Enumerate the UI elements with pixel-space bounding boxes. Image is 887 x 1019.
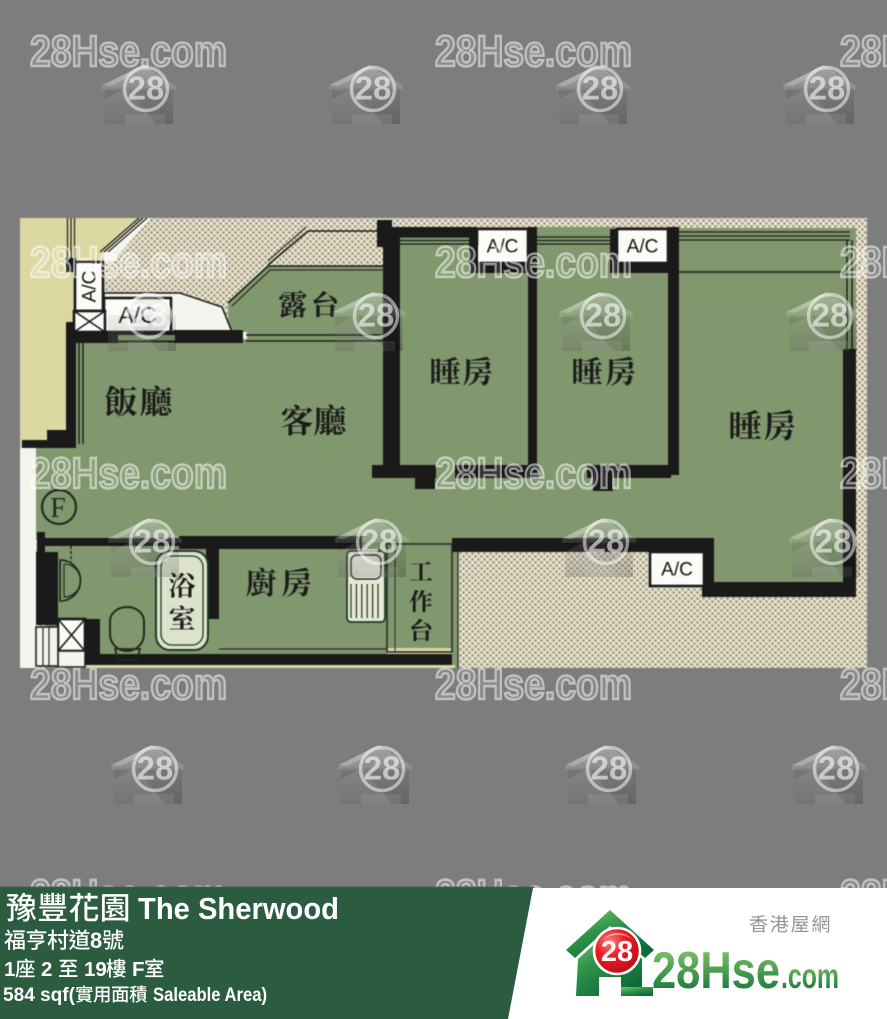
svg-text:28Hse.com: 28Hse.com	[435, 449, 632, 498]
svg-text:28Hse.com: 28Hse.com	[30, 449, 227, 498]
svg-text:28Hse.com: 28Hse.com	[30, 660, 227, 709]
svg-text:28Hse.com: 28Hse.com	[840, 449, 887, 498]
svg-text:.com: .com	[781, 957, 839, 996]
svg-text:Saleable Area): Saleable Area)	[153, 985, 267, 1006]
svg-text:28Hse.com: 28Hse.com	[840, 660, 887, 709]
svg-text:19: 19	[84, 958, 107, 981]
svg-text:F: F	[132, 958, 145, 981]
svg-text:28Hse.com: 28Hse.com	[840, 238, 887, 287]
svg-text:584 sqf(: 584 sqf(	[3, 985, 76, 1006]
svg-text:2: 2	[41, 958, 52, 981]
svg-text:28Hse.com: 28Hse.com	[435, 238, 632, 287]
svg-text:28Hse: 28Hse	[652, 942, 780, 1000]
svg-text:8: 8	[90, 928, 102, 953]
svg-text:28Hse.com: 28Hse.com	[435, 660, 632, 709]
svg-text:1: 1	[4, 958, 15, 981]
svg-text:28: 28	[601, 936, 633, 968]
svg-text:The Sherwood: The Sherwood	[138, 891, 339, 926]
svg-text:28Hse.com: 28Hse.com	[30, 238, 227, 287]
svg-text:28Hse.com: 28Hse.com	[840, 27, 887, 76]
